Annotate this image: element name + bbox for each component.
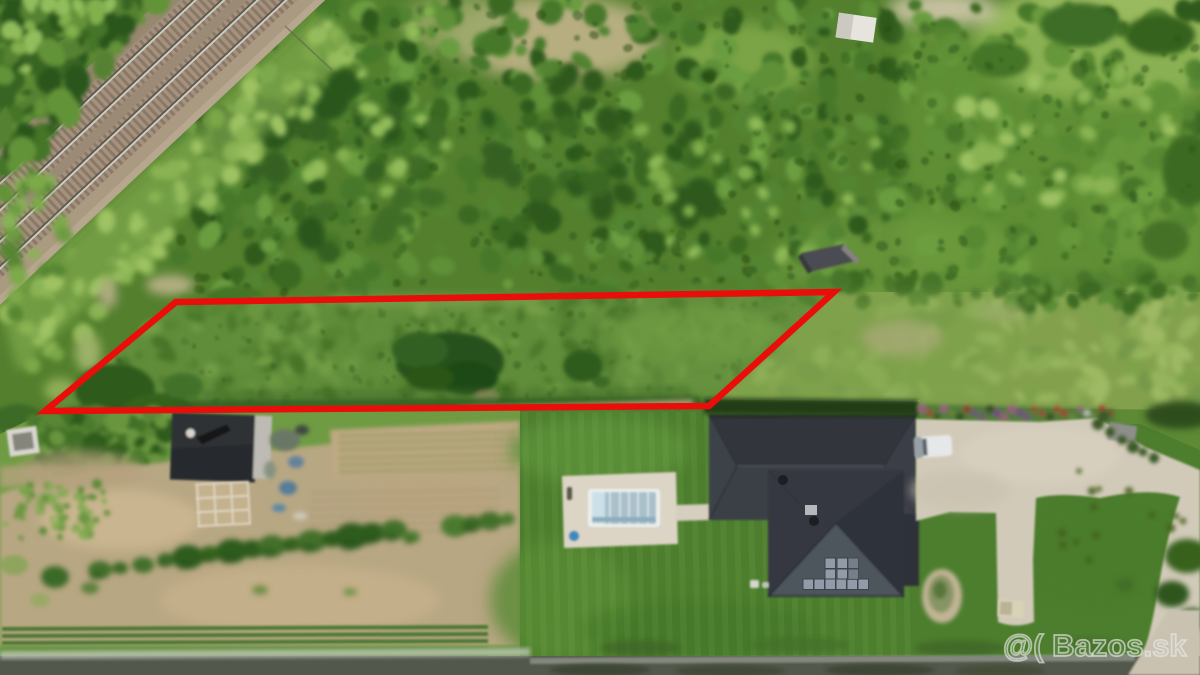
svg-text:@( Bazos.sk: @( Bazos.sk [1003, 628, 1187, 663]
